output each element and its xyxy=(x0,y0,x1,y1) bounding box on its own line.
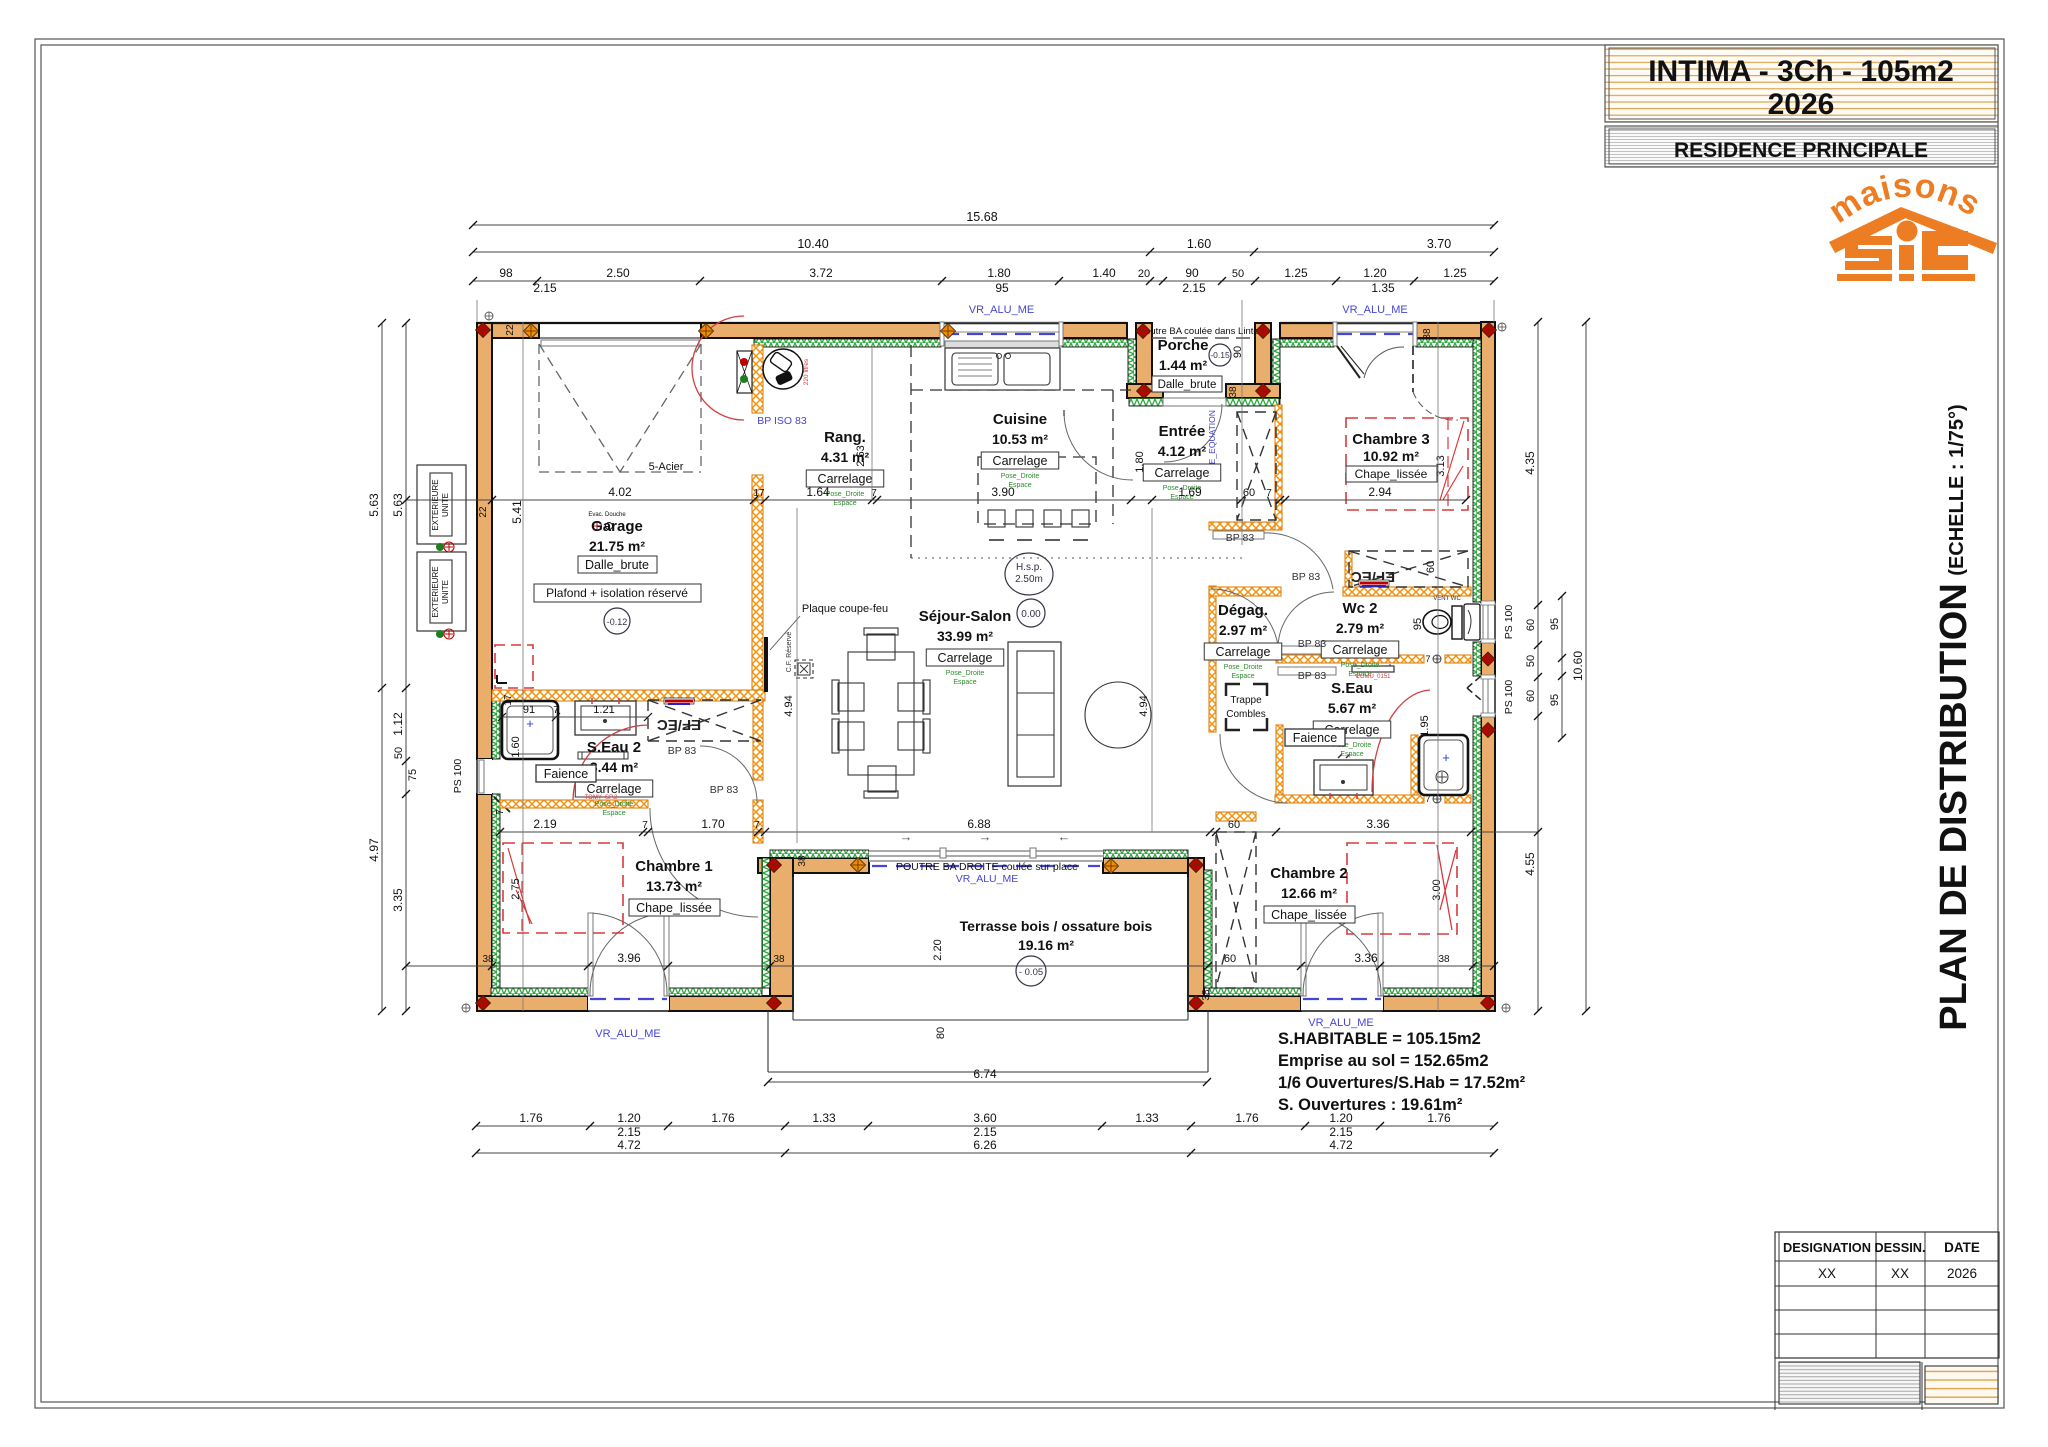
svg-text:1.12: 1.12 xyxy=(391,712,405,736)
svg-text:Entrée: Entrée xyxy=(1159,423,1206,440)
svg-text:Porche: Porche xyxy=(1158,337,1209,354)
svg-text:PS 100: PS 100 xyxy=(452,759,464,794)
svg-text:1.95: 1.95 xyxy=(1419,715,1431,736)
svg-text:10.53 m²: 10.53 m² xyxy=(992,431,1048,447)
svg-text:POUTRE BA DROITE coulée sur pl: POUTRE BA DROITE coulée sur place xyxy=(896,861,1078,873)
svg-text:Dégag.: Dégag. xyxy=(1218,602,1268,619)
svg-text:Cuisine: Cuisine xyxy=(993,411,1047,428)
svg-text:2.15: 2.15 xyxy=(617,1125,641,1139)
svg-text:1.80: 1.80 xyxy=(1134,451,1146,472)
svg-text:VR_ALU_ME: VR_ALU_ME xyxy=(595,1028,660,1040)
svg-text:Carrelage: Carrelage xyxy=(818,472,873,486)
svg-text:3.35: 3.35 xyxy=(391,888,405,912)
svg-text:VR_ALU_ME: VR_ALU_ME xyxy=(969,304,1034,316)
svg-text:Espace: Espace xyxy=(1340,751,1363,758)
svg-text:VR_ALU_ME: VR_ALU_ME xyxy=(1308,1017,1373,1029)
svg-text:95: 95 xyxy=(1412,618,1424,630)
svg-text:6.88: 6.88 xyxy=(967,817,991,831)
svg-text:4.12 m²: 4.12 m² xyxy=(1158,443,1207,459)
svg-text:50: 50 xyxy=(1232,268,1244,280)
svg-text:2.15: 2.15 xyxy=(973,1125,997,1139)
svg-text:Pose_Droite: Pose_Droite xyxy=(946,670,985,677)
svg-text:2.79 m²: 2.79 m² xyxy=(1336,620,1385,636)
svg-text:Poutre BA coulée dans Linteau: Poutre BA coulée dans Linteau xyxy=(1139,326,1269,337)
svg-text:1.25: 1.25 xyxy=(1443,266,1467,280)
svg-text:TOMY_SP.2: TOMY_SP.2 xyxy=(585,795,618,801)
svg-text:Pose_Droite: Pose_Droite xyxy=(1224,664,1263,671)
svg-text:UNITE: UNITE xyxy=(441,493,450,517)
svg-text:1.76: 1.76 xyxy=(711,1111,735,1125)
svg-text:1.21: 1.21 xyxy=(593,704,614,716)
svg-text:BP 83: BP 83 xyxy=(1298,638,1327,650)
svg-text:5.63: 5.63 xyxy=(391,493,405,517)
svg-text:VR_ALU_ME: VR_ALU_ME xyxy=(1342,304,1407,316)
svg-text:38: 38 xyxy=(797,855,808,867)
svg-text:7: 7 xyxy=(495,809,506,815)
svg-text:220 litres: 220 litres xyxy=(803,358,810,385)
svg-text:+: + xyxy=(1442,750,1450,765)
svg-text:VR_ALU_ME: VR_ALU_ME xyxy=(956,873,1018,885)
svg-text:Plaque coupe-feu: Plaque coupe-feu xyxy=(802,603,888,615)
svg-text:Carrelage: Carrelage xyxy=(1333,643,1388,657)
svg-text:Carrelage: Carrelage xyxy=(1155,466,1210,480)
svg-text:4.94: 4.94 xyxy=(783,695,795,716)
svg-text:7: 7 xyxy=(1266,488,1272,499)
svg-text:17: 17 xyxy=(753,488,765,499)
svg-text:38: 38 xyxy=(1228,386,1239,398)
svg-text:BP 83: BP 83 xyxy=(1298,670,1327,682)
svg-text:Faience: Faience xyxy=(544,767,589,781)
svg-text:1.80: 1.80 xyxy=(987,266,1011,280)
svg-text:+: + xyxy=(526,716,534,731)
svg-text:Chambre 3: Chambre 3 xyxy=(1352,431,1430,448)
svg-text:4.02: 4.02 xyxy=(608,485,632,499)
svg-text:33.99 m²: 33.99 m² xyxy=(937,628,993,644)
svg-text:3.72: 3.72 xyxy=(809,266,833,280)
svg-text:S. Ouvertures : 19.61m²: S. Ouvertures : 19.61m² xyxy=(1278,1096,1463,1114)
svg-text:12.66 m²: 12.66 m² xyxy=(1281,885,1337,901)
svg-text:1.70: 1.70 xyxy=(701,817,725,831)
svg-text:←: ← xyxy=(1058,829,1071,844)
svg-text:XX: XX xyxy=(1818,1266,1836,1281)
svg-text:3.36: 3.36 xyxy=(1366,817,1390,831)
svg-text:95: 95 xyxy=(1549,694,1561,706)
svg-text:1.69: 1.69 xyxy=(1178,485,1202,499)
svg-text:Pose_Droite: Pose_Droite xyxy=(595,801,634,808)
svg-text:BP 83: BP 83 xyxy=(668,745,697,757)
svg-text:EF/EC: EF/EC xyxy=(657,716,701,733)
svg-text:Chape_lissée: Chape_lissée xyxy=(636,901,712,915)
svg-text:Dalle_brute: Dalle_brute xyxy=(1158,379,1217,391)
svg-text:DESSIN.: DESSIN. xyxy=(1874,1240,1925,1255)
svg-text:1.40: 1.40 xyxy=(1092,266,1116,280)
svg-text:2026: 2026 xyxy=(1768,88,1835,121)
svg-text:10.60: 10.60 xyxy=(1571,651,1585,681)
svg-text:4.94: 4.94 xyxy=(1138,695,1150,716)
svg-text:5.63: 5.63 xyxy=(367,493,381,517)
svg-text:UNITE: UNITE xyxy=(441,580,450,604)
svg-text:2026: 2026 xyxy=(1947,1266,1977,1281)
svg-text:INTIMA - 3Ch - 105m2: INTIMA - 3Ch - 105m2 xyxy=(1648,55,1954,88)
svg-text:3.96: 3.96 xyxy=(617,951,641,965)
svg-text:1.35: 1.35 xyxy=(1371,281,1395,295)
svg-text:-0.12: -0.12 xyxy=(607,617,628,627)
svg-text:38: 38 xyxy=(773,954,785,965)
svg-text:Espace: Espace xyxy=(1348,671,1371,678)
svg-text:→: → xyxy=(979,829,992,844)
svg-text:1.20: 1.20 xyxy=(617,1111,641,1125)
svg-text:50: 50 xyxy=(1525,655,1537,667)
svg-text:2.15: 2.15 xyxy=(1182,281,1206,295)
svg-text:38: 38 xyxy=(482,954,494,965)
svg-text:S.Eau 2: S.Eau 2 xyxy=(587,739,641,756)
svg-text:PS 100: PS 100 xyxy=(1503,605,1515,640)
svg-text:3.36: 3.36 xyxy=(1354,951,1378,965)
svg-text:1.20: 1.20 xyxy=(1363,266,1387,280)
svg-text:Chape_lissée: Chape_lissée xyxy=(1355,467,1428,481)
svg-text:38: 38 xyxy=(1438,954,1450,965)
svg-text:91: 91 xyxy=(523,704,535,716)
svg-text:21.75 m²: 21.75 m² xyxy=(589,538,645,554)
svg-text:90: 90 xyxy=(1185,266,1199,280)
svg-text:4.72: 4.72 xyxy=(1329,1138,1353,1152)
svg-text:2.20: 2.20 xyxy=(932,939,944,960)
svg-text:EXTERIEURE: EXTERIEURE xyxy=(431,566,440,617)
svg-text:7: 7 xyxy=(1425,654,1430,664)
svg-text:2.75: 2.75 xyxy=(510,878,522,899)
svg-text:2.15: 2.15 xyxy=(1329,1125,1353,1139)
svg-text:50: 50 xyxy=(393,747,405,759)
svg-text:BP 83: BP 83 xyxy=(710,784,739,796)
svg-text:60: 60 xyxy=(1228,819,1240,831)
svg-text:Pose_Droite: Pose_Droite xyxy=(1341,662,1380,669)
svg-text:2.19: 2.19 xyxy=(533,817,557,831)
svg-text:Dalle_brute: Dalle_brute xyxy=(585,558,649,572)
svg-text:S.Eau: S.Eau xyxy=(1331,680,1373,697)
svg-text:1.33: 1.33 xyxy=(1135,1111,1159,1125)
svg-text:3.60: 3.60 xyxy=(973,1111,997,1125)
svg-text:4.55: 4.55 xyxy=(1523,852,1537,876)
svg-text:(ECHELLE : 1/75°): (ECHELLE : 1/75°) xyxy=(1946,404,1968,575)
svg-text:0.00: 0.00 xyxy=(1021,609,1041,620)
svg-text:38: 38 xyxy=(1201,989,1212,1001)
svg-text:Espace: Espace xyxy=(833,500,856,507)
svg-text:XX: XX xyxy=(1891,1266,1909,1281)
svg-text:19.16 m²: 19.16 m² xyxy=(1018,937,1074,953)
svg-text:-0.15: -0.15 xyxy=(1210,350,1230,360)
svg-text:7: 7 xyxy=(754,820,760,831)
svg-text:95: 95 xyxy=(1549,618,1561,630)
svg-text:Trappe: Trappe xyxy=(1230,695,1262,706)
svg-text:Carrelage: Carrelage xyxy=(993,454,1048,468)
svg-text:15.68: 15.68 xyxy=(966,210,997,224)
svg-text:Pose_Droite: Pose_Droite xyxy=(1001,473,1040,480)
svg-text:3.70: 3.70 xyxy=(1427,237,1451,251)
svg-text:6.74: 6.74 xyxy=(973,1067,997,1081)
svg-text:Espace: Espace xyxy=(602,810,625,817)
svg-text:BP ISO 83: BP ISO 83 xyxy=(757,415,807,427)
svg-text:7: 7 xyxy=(642,820,648,831)
svg-text:2.15: 2.15 xyxy=(533,281,557,295)
svg-text:Faience: Faience xyxy=(1293,731,1338,745)
svg-text:10.40: 10.40 xyxy=(797,237,828,251)
svg-text:PLAN DE DISTRIBUTION: PLAN DE DISTRIBUTION xyxy=(1933,583,1975,1031)
svg-text:3.44 m²: 3.44 m² xyxy=(590,759,639,775)
svg-text:1.60: 1.60 xyxy=(510,736,522,757)
svg-text:VENT WC: VENT WC xyxy=(1433,596,1461,602)
svg-text:3.90: 3.90 xyxy=(991,485,1015,499)
svg-text:95: 95 xyxy=(995,281,1009,295)
svg-text:1.33: 1.33 xyxy=(812,1111,836,1125)
svg-text:2.50m: 2.50m xyxy=(1015,574,1043,585)
svg-text:6.26: 6.26 xyxy=(973,1138,997,1152)
svg-text:7: 7 xyxy=(553,705,559,716)
svg-text:13.73 m²: 13.73 m² xyxy=(646,878,702,894)
svg-text:→: → xyxy=(900,829,913,844)
svg-text:DESIGNATION: DESIGNATION xyxy=(1783,1240,1871,1255)
svg-text:Séjour-Salon: Séjour-Salon xyxy=(919,608,1012,625)
svg-text:98: 98 xyxy=(499,266,513,280)
svg-text:Espace: Espace xyxy=(953,679,976,686)
svg-text:3.13: 3.13 xyxy=(1435,455,1447,476)
svg-text:Chambre 1: Chambre 1 xyxy=(635,858,713,875)
svg-text:H.s.p.: H.s.p. xyxy=(1016,562,1042,573)
svg-text:2.50: 2.50 xyxy=(606,266,630,280)
svg-text:RESIDENCE PRINCIPALE: RESIDENCE PRINCIPALE xyxy=(1674,139,1928,162)
svg-text:3.00: 3.00 xyxy=(1431,879,1443,900)
svg-text:1.60: 1.60 xyxy=(1187,237,1211,251)
svg-text:22: 22 xyxy=(478,506,489,518)
svg-text:Garage: Garage xyxy=(591,518,643,535)
svg-text:2.97 m²: 2.97 m² xyxy=(1219,622,1268,638)
svg-text:60: 60 xyxy=(1525,690,1537,702)
svg-text:5.41: 5.41 xyxy=(510,500,524,524)
svg-text:C.F. Réservé: C.F. Réservé xyxy=(786,632,793,673)
svg-text:EXTERIEURE: EXTERIEURE xyxy=(431,479,440,530)
svg-text:Carrelage: Carrelage xyxy=(1216,645,1271,659)
svg-text:1.76: 1.76 xyxy=(519,1111,543,1125)
svg-text:20: 20 xyxy=(1138,268,1150,280)
svg-text:BP 83: BP 83 xyxy=(1292,571,1321,583)
svg-text:80: 80 xyxy=(935,1027,947,1039)
svg-text:4.35: 4.35 xyxy=(1523,451,1537,475)
svg-text:5-Acier: 5-Acier xyxy=(649,461,684,473)
svg-text:Combles: Combles xyxy=(1226,709,1265,720)
svg-text:17: 17 xyxy=(503,694,514,706)
svg-text:60: 60 xyxy=(1224,953,1236,965)
svg-text:4.97: 4.97 xyxy=(367,838,381,862)
svg-text:Emprise au sol = 152.65m2: Emprise au sol = 152.65m2 xyxy=(1278,1052,1489,1070)
svg-text:2.94: 2.94 xyxy=(1368,485,1392,499)
svg-text:BP 83: BP 83 xyxy=(1226,532,1255,544)
svg-text:75: 75 xyxy=(407,769,419,781)
svg-text:PS 100: PS 100 xyxy=(1503,680,1515,715)
svg-text:Carrelage: Carrelage xyxy=(938,651,993,665)
svg-text:60: 60 xyxy=(1425,561,1437,573)
svg-text:Chambre 2: Chambre 2 xyxy=(1270,865,1348,882)
svg-text:Plafond + isolation réservé: Plafond + isolation réservé xyxy=(546,586,688,600)
svg-text:10.92 m²: 10.92 m² xyxy=(1363,448,1419,464)
svg-text:60: 60 xyxy=(1243,487,1255,499)
svg-text:Pose_Droite: Pose_Droite xyxy=(826,491,865,498)
svg-text:1.76: 1.76 xyxy=(1235,1111,1259,1125)
svg-text:PE_EQUATION: PE_EQUATION xyxy=(1207,410,1217,470)
svg-text:Wc 2: Wc 2 xyxy=(1342,600,1377,617)
svg-text:- 0.05: - 0.05 xyxy=(1019,967,1043,978)
svg-text:1/6 Ouvertures/S.Hab = 17.52m²: 1/6 Ouvertures/S.Hab = 17.52m² xyxy=(1278,1074,1526,1092)
svg-text:Rang.: Rang. xyxy=(824,429,866,446)
svg-text:60: 60 xyxy=(1525,619,1537,631)
svg-text:Espace: Espace xyxy=(1231,673,1254,680)
svg-text:38: 38 xyxy=(1422,328,1433,340)
svg-text:22: 22 xyxy=(505,324,516,336)
svg-text:1.64: 1.64 xyxy=(806,485,830,499)
svg-text:2.63: 2.63 xyxy=(855,445,867,466)
svg-text:1.25: 1.25 xyxy=(1284,266,1308,280)
svg-text:DATE: DATE xyxy=(1944,1240,1980,1255)
svg-text:1.44 m²: 1.44 m² xyxy=(1159,357,1208,373)
svg-text:4.72: 4.72 xyxy=(617,1138,641,1152)
svg-text:Carrelage: Carrelage xyxy=(587,782,642,796)
svg-text:5.67 m²: 5.67 m² xyxy=(1328,700,1377,716)
svg-text:Terrasse bois / ossature bois: Terrasse bois / ossature bois xyxy=(960,918,1153,934)
svg-text:S.HABITABLE = 105.15m2: S.HABITABLE = 105.15m2 xyxy=(1278,1030,1481,1048)
svg-text:Chape_lissée: Chape_lissée xyxy=(1271,908,1347,922)
